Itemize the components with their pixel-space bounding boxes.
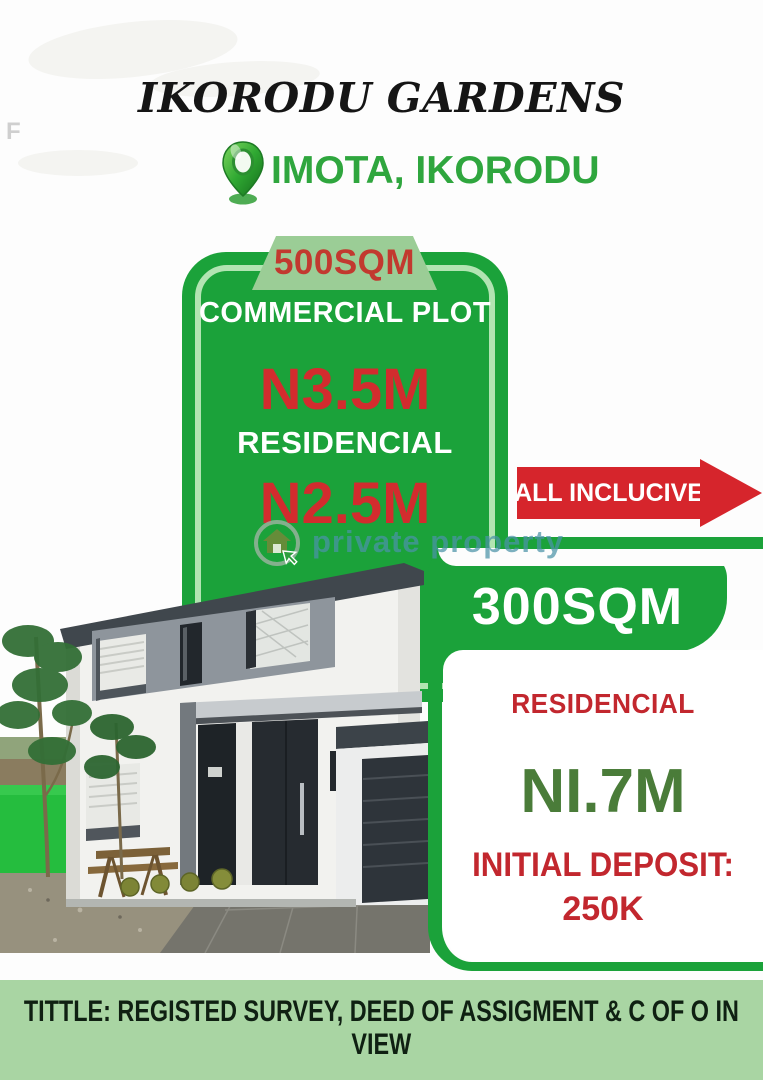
title-deed-line1: TITTLE: REGISTED SURVEY, DEED OF ASSIGME… <box>24 995 739 1028</box>
size-banner-label: 300SQM <box>472 567 683 637</box>
location-pin-icon <box>220 140 266 206</box>
size-tab-500sqm: 500SQM <box>252 236 437 290</box>
scan-smudge <box>18 150 138 176</box>
offer-card-300sqm: RESIDENCIAL NI.7M INITIAL DEPOSIT: 250K <box>443 650 763 962</box>
initial-deposit-amount: 250K <box>443 890 763 929</box>
plot-type-label: COMMERCIAL PLOT <box>182 297 508 330</box>
stray-watermark-letter: F <box>6 118 21 146</box>
estate-title: IKORODU GARDENS <box>0 74 763 122</box>
residential-price-300: NI.7M <box>443 756 763 827</box>
title-deed-strip: TITTLE: REGISTED SURVEY, DEED OF ASSIGME… <box>0 980 763 1080</box>
commercial-price: N3.5M <box>182 356 508 423</box>
private-property-watermark: private property <box>250 514 564 574</box>
residential-type-label: RESIDENCIAL <box>453 688 754 720</box>
location-text: IMOTA, IKORODU <box>271 149 600 193</box>
title-deed-line2: VIEW <box>352 1028 412 1061</box>
size-tab-label: 500SQM <box>274 243 415 283</box>
all-inclusive-banner: ALL INCLUCIVE <box>517 467 701 519</box>
residential-label: RESIDENCIAL <box>182 425 508 461</box>
arrow-right-icon <box>700 459 762 527</box>
flyer-root: F IKORODU GARDENS IMOTA, IKORODU 500SQM … <box>0 0 763 1080</box>
watermark-brand-text: private property <box>312 524 564 560</box>
initial-deposit-label: INITIAL DEPOSIT: <box>456 846 750 885</box>
all-inclusive-label: ALL INCLUCIVE <box>514 479 704 508</box>
house-photo <box>0 545 430 953</box>
house-logo-icon <box>250 515 308 573</box>
